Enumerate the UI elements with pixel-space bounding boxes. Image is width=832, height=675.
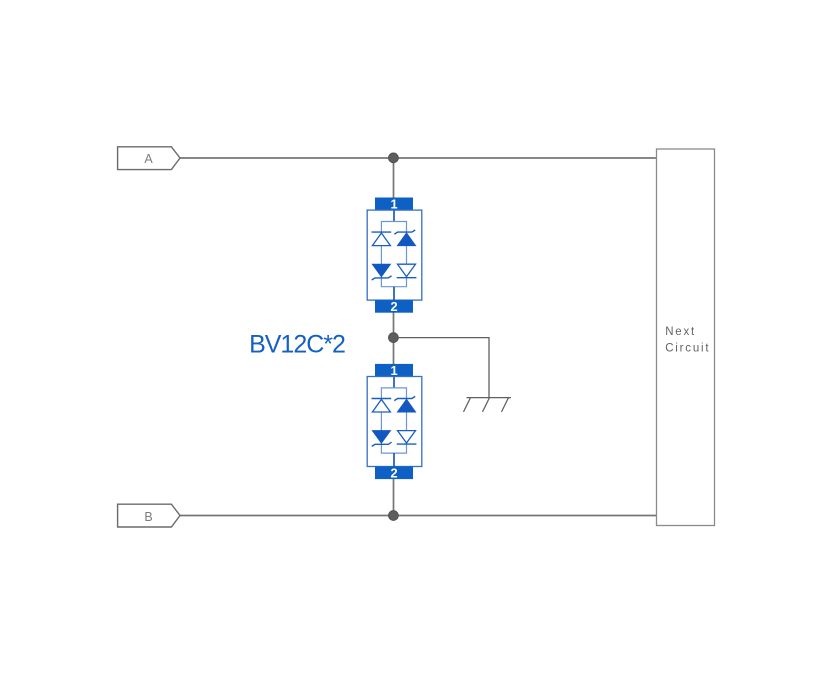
svg-text:1: 1: [390, 197, 397, 212]
svg-text:B: B: [144, 510, 152, 524]
svg-text:Next: Next: [665, 326, 696, 338]
svg-text:1: 1: [390, 363, 397, 378]
svg-text:2: 2: [390, 299, 397, 314]
svg-text:2: 2: [390, 466, 397, 481]
svg-text:BV12C*2: BV12C*2: [249, 331, 345, 359]
svg-text:A: A: [144, 152, 153, 166]
svg-text:Circuit: Circuit: [665, 343, 710, 355]
